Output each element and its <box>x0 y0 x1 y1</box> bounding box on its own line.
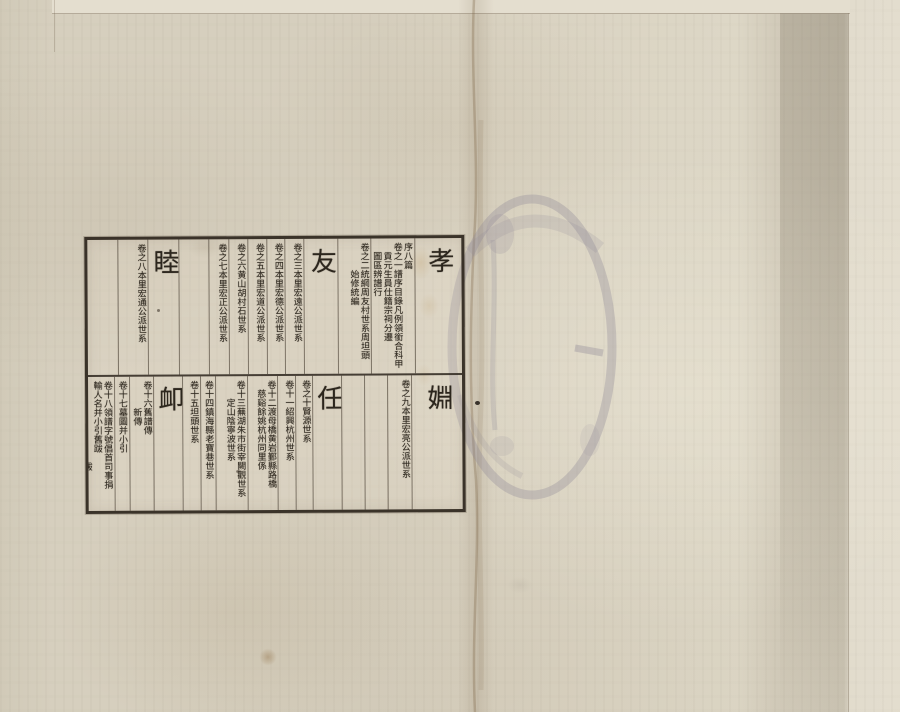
toc-column-text: 友 <box>307 239 335 374</box>
toc-line: 婣 <box>424 379 452 510</box>
toc-column-entry: 卷十八領譜字號倡首司事捐輸人名并小引舊跋跋 <box>88 376 114 511</box>
toc-line: 卷十二渡母橋黄岩鄞縣路橋 <box>265 379 276 510</box>
toc-line: 序八篇 <box>402 242 413 373</box>
ink-speck <box>475 401 480 405</box>
toc-column-entry: 卷十七墓圖并小引 <box>114 376 130 511</box>
toc-column-entry: 序八篇卷之一譜序目錄凡例領銜合科甲貢元生員仕籍宗祠分遷圖區辨譜行 <box>371 238 415 373</box>
toc-line: 卷十八領譜字號倡首司事捐 <box>102 380 113 511</box>
toc-column-text: 任 <box>313 375 341 510</box>
toc-column-entry: 卷之八本里宏通公派世系 <box>117 240 148 375</box>
toc-line: 圖區辨譜行 <box>371 242 382 373</box>
toc-column-text: 卷十一紹興杭州世系 <box>283 375 296 510</box>
toc-column-text: 卷之十賢源世系 <box>300 375 313 510</box>
toc-column-entry: 卷之三本里宏遠公派世系 <box>285 239 304 374</box>
underpage-shadow <box>780 13 848 712</box>
toc-line: 卹 <box>155 380 183 511</box>
toc-line: 卷之十賢源世系 <box>300 379 311 510</box>
toc-column-empty <box>341 375 365 510</box>
toc-line: 友 <box>307 243 335 374</box>
toc-column-entry: 卷之四本里宏德公派世系 <box>266 239 285 374</box>
toc-column-section: 任 <box>312 375 341 510</box>
toc-column-section: 卹 <box>153 376 182 511</box>
toc-table: 孝序八篇卷之一譜序目錄凡例領銜合科甲貢元生員仕籍宗祠分遷圖區辨譜行卷之二統綱周友… <box>84 235 465 514</box>
toc-line: 卷十六舊譜傳 <box>141 380 152 511</box>
toc-column-text: 卷之五本里宏道公派世系 <box>254 239 267 374</box>
toc-column-text: 卷之九本里宏亮公派世系 <box>399 375 412 510</box>
toc-line: 始修統編 <box>348 243 359 374</box>
toc-line: 卷之六黄山胡村石世系 <box>235 243 246 374</box>
toc-column-entry: 卷之九本里宏亮公派世系 <box>387 375 413 510</box>
toc-line: 卷十七墓圖并小引 <box>116 380 127 511</box>
toc-line: 卷十四鎮海縣老寶巷世系 <box>203 380 214 511</box>
page-left-edge <box>54 0 55 52</box>
toc-line: 輸人名并小引舊跋 <box>91 380 102 511</box>
toc-column-text: 卷之四本里宏德公派世系 <box>272 239 285 374</box>
toc-column-text: 卷十六舊譜傳新傳 <box>131 376 154 511</box>
toc-column-text: 卷之六黄山胡村石世系 <box>235 239 248 374</box>
toc-column-entry: 卷之七本里宏正公派世系 <box>209 239 229 374</box>
toc-column-entry: 卷十五坦頭世系 <box>182 376 201 511</box>
toc-column-text: 卷之七本里宏正公派世系 <box>216 239 229 374</box>
toc-line: 定山陰寧波世系 <box>224 380 235 511</box>
toc-column-text: 孝 <box>424 238 452 373</box>
toc-line: 卷之一譜序目錄凡例領銜合科甲 <box>391 242 402 373</box>
toc-column-text: 睦 <box>150 240 178 375</box>
scanned-page: 孝序八篇卷之一譜序目錄凡例領銜合科甲貢元生員仕籍宗祠分遷圖區辨譜行卷之二統綱周友… <box>0 0 900 712</box>
toc-column-text: 卷十五坦頭世系 <box>188 376 201 511</box>
toc-row: 婣卷之九本里宏亮公派世系任卷之十賢源世系卷十一紹興杭州世系卷十二渡母橋黄岩鄞縣路… <box>88 373 463 511</box>
toc-column-text: 卷之三本里宏遠公派世系 <box>291 239 304 374</box>
toc-column-section: 婣 <box>411 375 462 510</box>
toc-column-text: 卹 <box>155 376 183 511</box>
page-right-edge <box>848 13 849 712</box>
toc-column-entry: 卷十二渡母橋黄岩鄞縣路橋慈谿餘姚杭州同里係 <box>247 375 278 510</box>
toc-column-text: 卷十三蕪湖朱市街宰闕觀世系定山陰寧波世系 <box>224 376 247 511</box>
toc-column-entry: 卷之五本里宏道公派世系 <box>247 239 266 374</box>
toc-column-section: 孝 <box>414 238 462 373</box>
toc-line: 慈谿餘姚杭州同里係 <box>255 380 266 511</box>
toc-column-text: 卷之二統綱周友村世系周坦頭始修統編 <box>348 238 371 373</box>
toc-column-text: 卷十二渡母橋黄岩鄞縣路橋慈谿餘姚杭州同里係 <box>255 375 278 510</box>
toc-column-entry: 卷之二統綱周友村世系周坦頭始修統編 <box>337 238 371 373</box>
toc-line: 卷之八本里宏通公派世系 <box>135 244 146 375</box>
toc-line: 孝 <box>424 242 452 373</box>
toc-column-text: 婣 <box>424 375 452 510</box>
toc-column-section: 睦 <box>147 240 178 375</box>
toc-column-empty <box>364 375 388 510</box>
toc-line: 睦 <box>150 244 178 375</box>
toc-column-text: 卷十七墓圖并小引 <box>116 376 129 511</box>
toc-column-text: 序八篇卷之一譜序目錄凡例領銜合科甲貢元生員仕籍宗祠分遷圖區辨譜行 <box>371 238 415 373</box>
toc-column-section: 友 <box>303 239 337 374</box>
toc-column-text: 卷十四鎮海縣老寶巷世系 <box>203 376 216 511</box>
toc-column-empty <box>87 240 117 375</box>
toc-line: 卷之三本里宏遠公派世系 <box>291 243 302 374</box>
toc-column-entry: 卷十一紹興杭州世系 <box>277 375 296 510</box>
toc-column-entry: 卷之十賢源世系 <box>295 375 313 510</box>
toc-line: 卷十三蕪湖朱市街宰闕觀世系 <box>235 380 246 511</box>
toc-column-entry: 卷十三蕪湖朱市街宰闕觀世系定山陰寧波世系 <box>215 376 247 511</box>
toc-column-text: 卷之八本里宏通公派世系 <box>135 240 148 375</box>
toc-column-empty <box>178 239 209 374</box>
toc-line: 卷之七本里宏正公派世系 <box>216 243 227 374</box>
toc-column-entry: 卷之六黄山胡村石世系 <box>228 239 247 374</box>
toc-line: 卷十五坦頭世系 <box>188 380 199 511</box>
toc-line: 卷之二統綱周友村世系周坦頭 <box>358 243 369 374</box>
toc-line: 卷之九本里宏亮公派世系 <box>399 379 410 510</box>
toc-line: 卷之四本里宏德公派世系 <box>272 243 283 374</box>
toc-row: 孝序八篇卷之一譜序目錄凡例領銜合科甲貢元生員仕籍宗祠分遷圖區辨譜行卷之二統綱周友… <box>87 238 462 374</box>
toc-line: 卷十一紹興杭州世系 <box>283 379 294 510</box>
toc-line: 貢元生員仕籍宗祠分遷 <box>381 242 392 373</box>
toc-line: 卷之五本里宏道公派世系 <box>254 243 265 374</box>
toc-column-entry: 卷十六舊譜傳新傳 <box>129 376 155 511</box>
page-top-edge <box>52 0 850 14</box>
toc-column-text: 卷十八領譜字號倡首司事捐輸人名并小引舊跋跋 <box>88 376 114 511</box>
toc-column-entry: 卷十四鎮海縣老寶巷世系 <box>200 376 216 511</box>
toc-line: 任 <box>313 379 341 510</box>
